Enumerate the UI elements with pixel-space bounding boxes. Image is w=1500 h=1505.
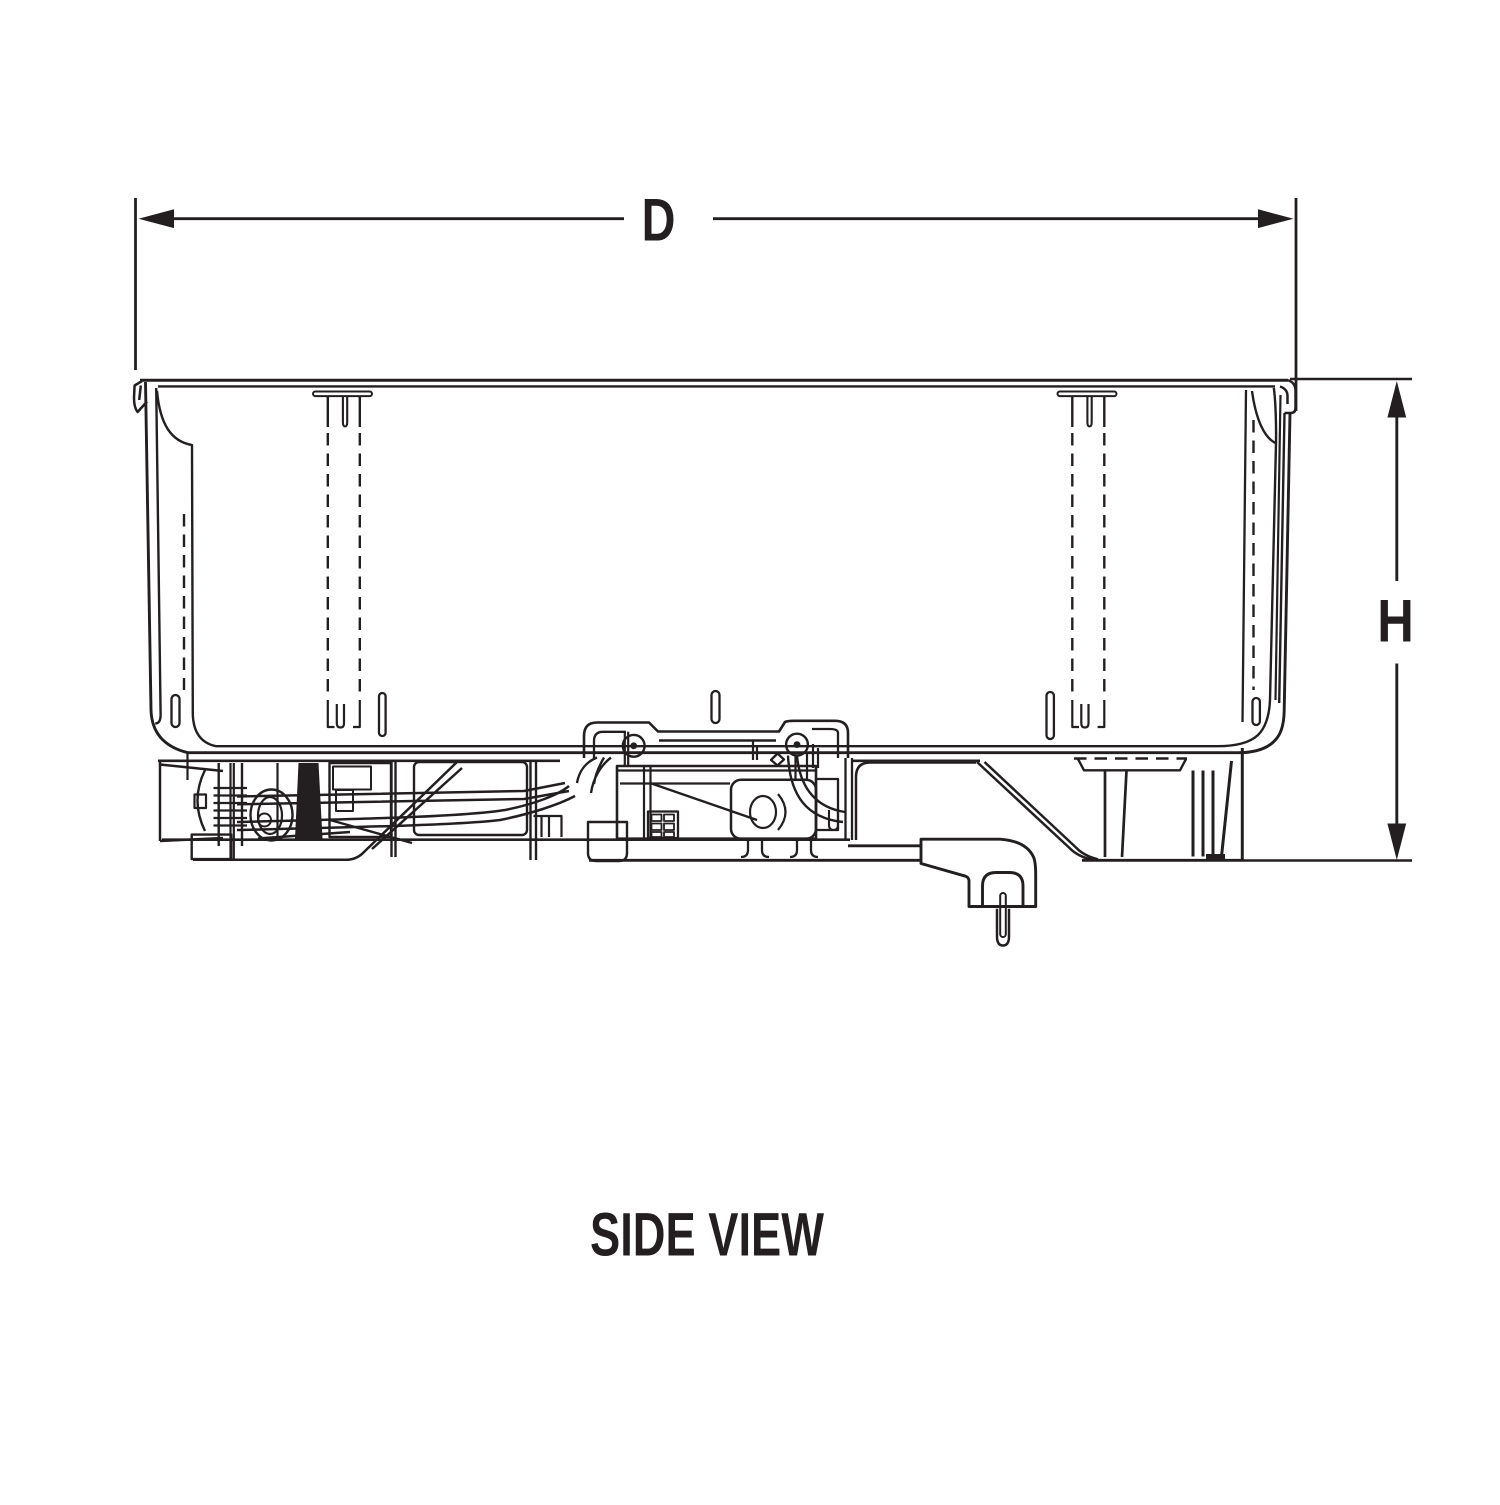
svg-text:D: D: [642, 187, 676, 254]
svg-text:SIDE VIEW: SIDE VIEW: [590, 1201, 824, 1269]
svg-text:H: H: [1377, 588, 1414, 655]
